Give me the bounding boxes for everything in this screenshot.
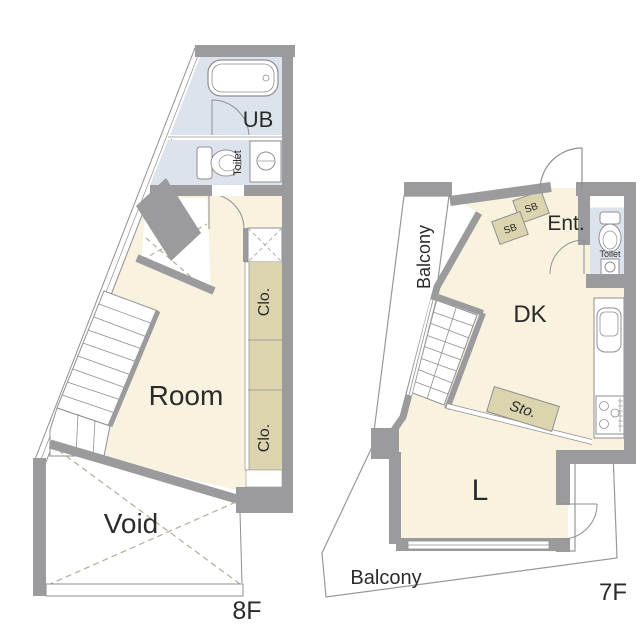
f8-ub-label: UB: [243, 107, 274, 132]
f8-duct-box: [243, 228, 282, 262]
floorplan-svg: UB Toilet Clo. Clo. Room Void 8F: [0, 0, 640, 640]
floorplan-canvas: UB Toilet Clo. Clo. Room Void 8F: [0, 0, 640, 640]
f8-plan: UB Toilet Clo. Clo. Room Void 8F: [33, 45, 295, 625]
f8-closet-upper-label: Clo.: [256, 288, 273, 316]
f7-plan: Sto. SB SB: [322, 148, 636, 606]
f8-room-label: Room: [149, 380, 224, 411]
f7-dk-label: DK: [513, 301, 546, 328]
f7-balcony-bottom-label: Balcony: [350, 567, 421, 589]
f8-balcony-ledge: [46, 584, 243, 596]
f8-closet-lower-label: Clo.: [256, 424, 273, 452]
f8-toilet-door-gap: [212, 185, 244, 196]
f7-floor-label: 7F: [599, 579, 627, 606]
f7-bottom-window: [408, 541, 549, 549]
f7-balcony-left-label: Balcony: [414, 225, 434, 289]
f8-bathtub-icon: [208, 60, 278, 96]
f7-stove-icon: [596, 396, 624, 434]
f7-kitchen-counter: [594, 298, 624, 438]
f8-washbasin-icon: [250, 141, 281, 182]
f7-living-label: L: [472, 474, 489, 507]
f8-floor-label: 8F: [232, 597, 261, 625]
f8-void-label: Void: [104, 508, 159, 539]
f7-sink-icon: [597, 308, 621, 352]
f7-toilet-label: Toilet: [599, 249, 621, 259]
f8-toilet-label: Toilet: [232, 150, 244, 176]
f7-toilet-basin-icon: [601, 259, 619, 275]
f8-closet-gap: [246, 470, 282, 487]
f7-toilet-icon: [599, 212, 621, 252]
f7-entrance-label: Ent.: [547, 212, 584, 235]
